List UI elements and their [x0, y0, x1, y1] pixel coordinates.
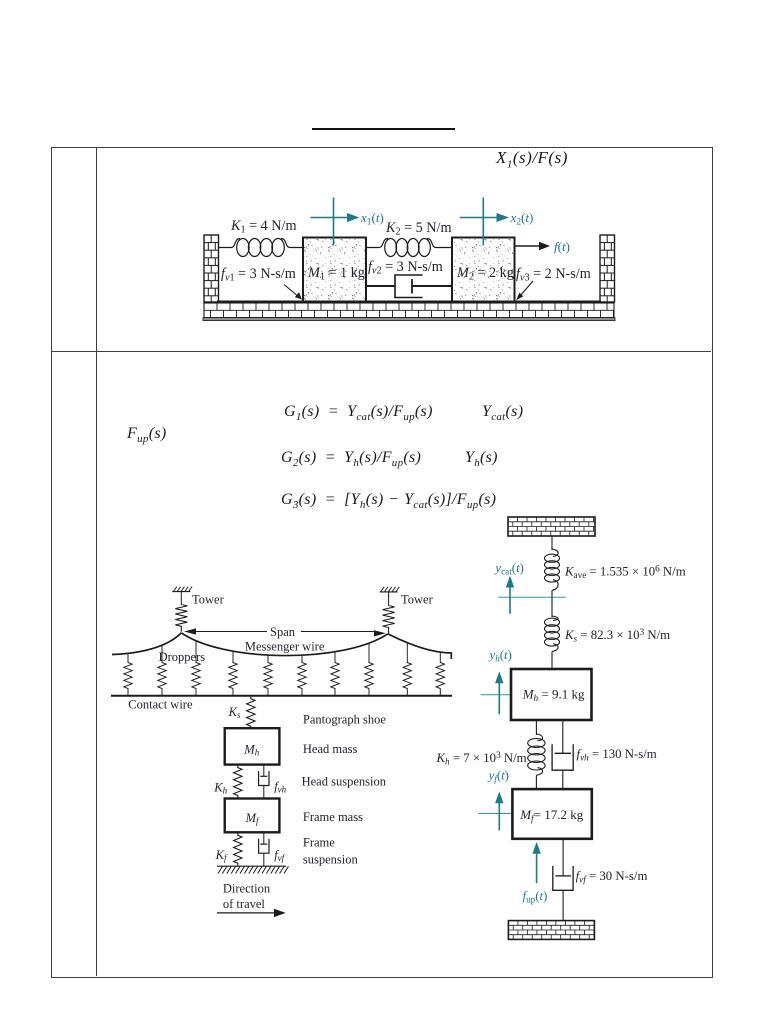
svg-text:of travel: of travel	[223, 897, 266, 911]
svg-text:Messenger wire: Messenger wire	[245, 640, 325, 654]
svg-text:Kh​: Kh​	[213, 781, 227, 796]
svg-text:fv​1​ = 3 N-s/m: fv​1​ = 3 N-s/m	[221, 266, 296, 284]
svg-text:K2​ = 5 N/m: K2​ = 5 N/m	[385, 220, 452, 238]
svg-text:M1​ = 1 kg: M1​ = 1 kg	[307, 265, 365, 283]
svg-text:Kave​ = 1.535 × 106​ N/m: Kave​ = 1.535 × 106​ N/m	[564, 563, 686, 580]
svg-text:Tower: Tower	[401, 593, 434, 607]
svg-text:Contact wire: Contact wire	[128, 698, 193, 712]
svg-text:fvf​: fvf​	[274, 848, 285, 863]
svg-text:yh​(t): yh​(t)	[488, 648, 512, 663]
svg-text:Ks​ = 82.3 × 103​ N/m: Ks​ = 82.3 × 103​ N/m	[564, 627, 670, 644]
svg-text:Head mass: Head mass	[303, 742, 358, 756]
svg-text:Mf​= 17.2 kg: Mf​= 17.2 kg	[519, 807, 584, 824]
svg-text:Droppers: Droppers	[159, 650, 206, 664]
svg-text:x1​(t): x1​(t)	[360, 210, 384, 227]
svg-text:x2​(t): x2​(t)	[510, 210, 534, 227]
svg-text:fvh​: fvh​	[274, 780, 286, 795]
svg-text:fup​(t): fup​(t)	[523, 889, 548, 904]
svg-text:K1​ = 4 N/m: K1​ = 4 N/m	[230, 218, 297, 236]
svg-text:M2​ = 2 kg: M2​ = 2 kg	[456, 265, 514, 283]
svg-text:Mh​ = 9.1 kg: Mh​ = 9.1 kg	[522, 687, 585, 704]
svg-text:Pantograph shoe: Pantograph shoe	[303, 713, 386, 727]
svg-text:fvh​ = 130 N-s/m: fvh​ = 130 N-s/m	[577, 747, 657, 762]
svg-text:Frame mass: Frame mass	[303, 810, 363, 824]
svg-text:Mf​: Mf​	[245, 811, 260, 826]
svg-text:suspension: suspension	[303, 853, 359, 867]
svg-text:Ks​: Ks​	[228, 705, 241, 720]
svg-text:Tower: Tower	[192, 593, 225, 607]
svg-text:Kh​ = 7 × 103​ N/m: Kh​ = 7 × 103​ N/m	[436, 750, 527, 767]
svg-text:Direction: Direction	[223, 882, 271, 896]
svg-text:ycat​(t): ycat​(t)	[493, 561, 524, 576]
svg-text:Head suspension: Head suspension	[302, 775, 387, 789]
svg-text:Frame: Frame	[303, 836, 335, 850]
svg-text:f(t): f(t)	[554, 239, 570, 254]
svg-text:fvf​ = 30 N-s/m: fvf​ = 30 N-s/m	[576, 869, 648, 884]
svg-text:fv​2​ = 3 N-s/m: fv​2​ = 3 N-s/m	[368, 259, 443, 277]
svg-text:fv​3​ = 2 N-s/m: fv​3​ = 2 N-s/m	[516, 266, 591, 284]
svg-text:Kf​: Kf​	[215, 848, 228, 863]
svg-text:yf​(t): yf​(t)	[487, 769, 509, 784]
svg-text:Span: Span	[270, 625, 296, 639]
